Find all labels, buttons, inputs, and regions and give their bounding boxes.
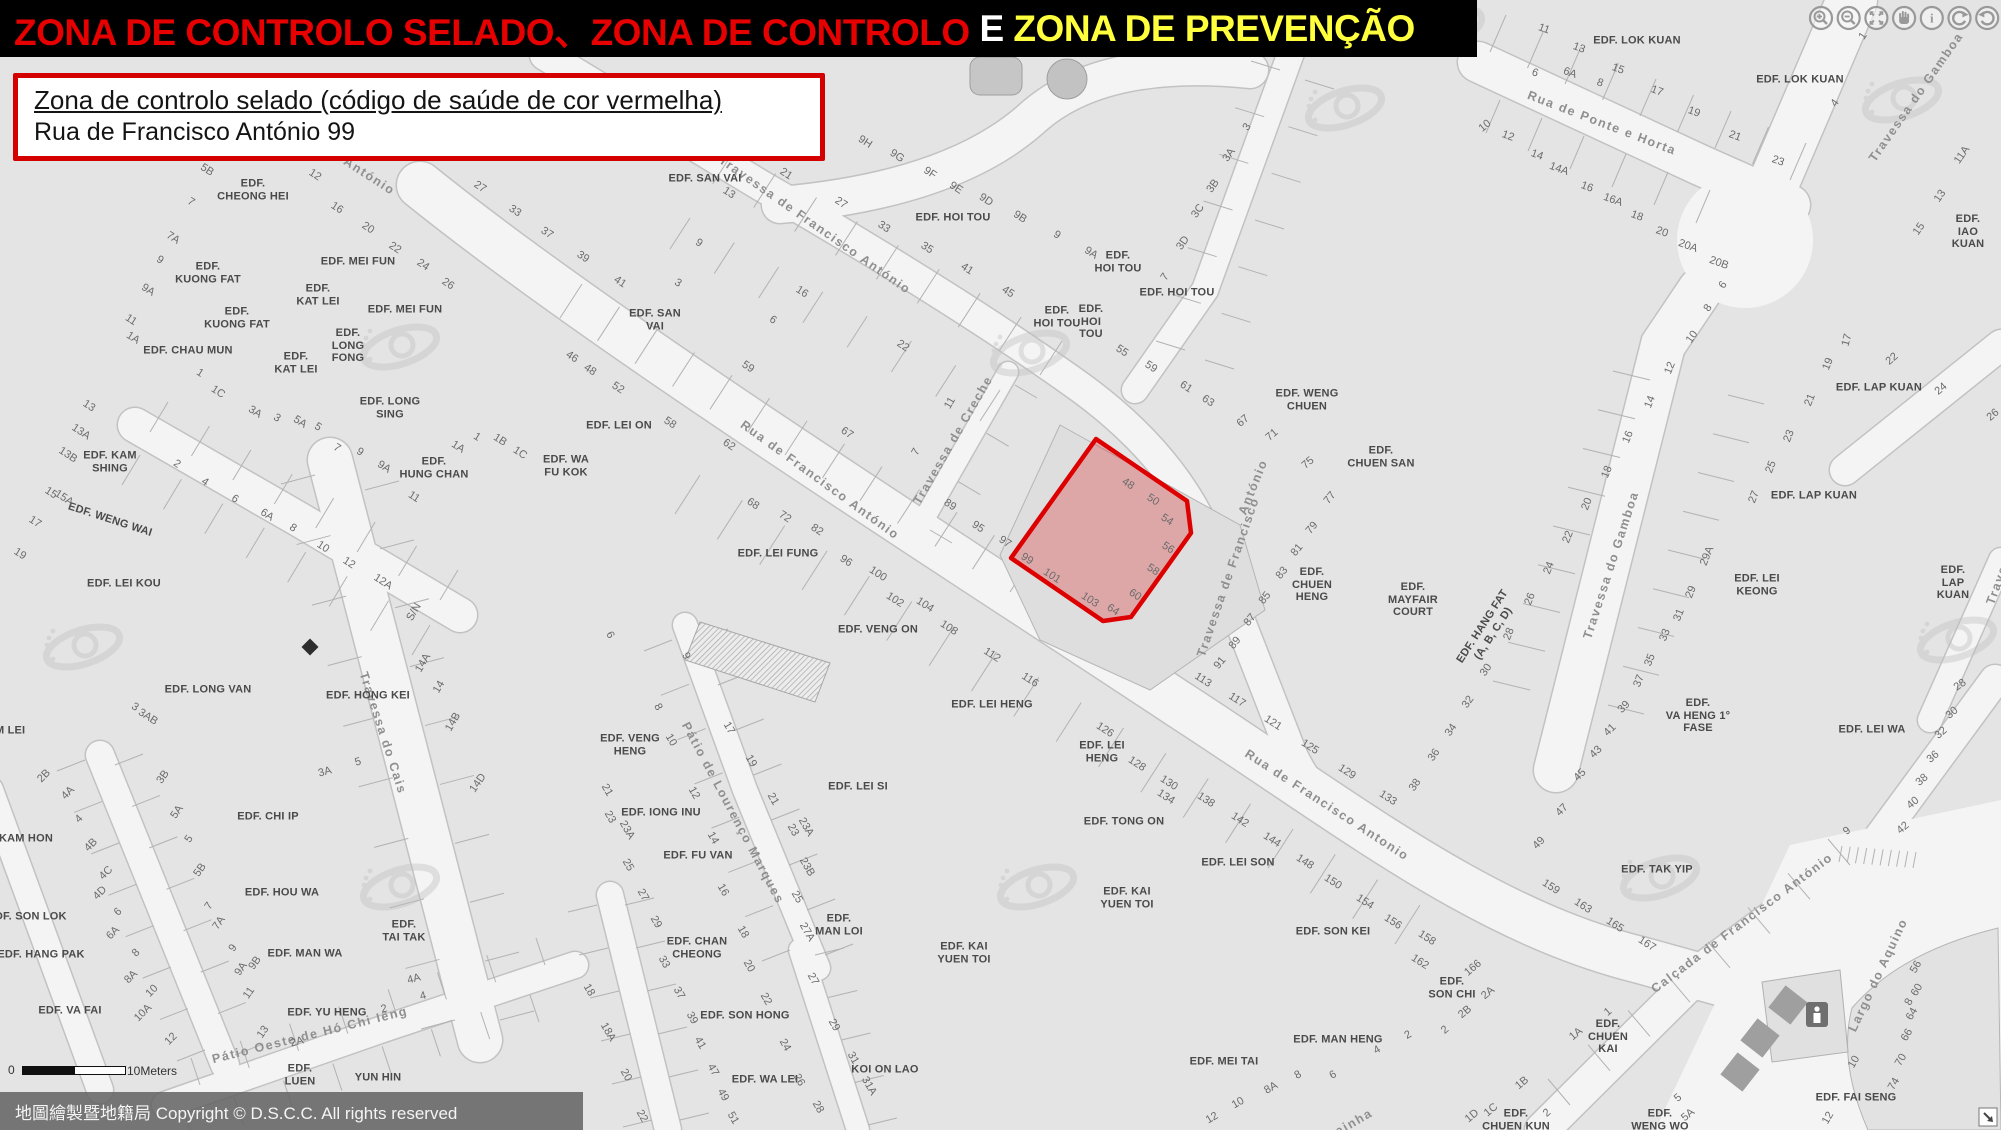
lot-number-label: 9E — [947, 179, 965, 196]
lot-number-label: 6 — [229, 492, 241, 505]
lot-number-label: 101 — [1041, 566, 1063, 586]
lot-number-label: 5A — [168, 803, 186, 821]
building-label: EDF. LONG VAN — [165, 684, 252, 697]
lot-number-label: 8 — [1701, 302, 1714, 314]
lot-number-label: 150 — [1322, 872, 1344, 892]
lot-number-label: 1C — [511, 444, 529, 462]
lot-number-label: 47 — [1553, 801, 1570, 818]
lot-number-label: 12 — [1500, 128, 1516, 143]
lot-number-label: 9 — [226, 942, 239, 954]
lot-number-label: 36 — [1426, 747, 1443, 764]
lot-number-label: 41 — [959, 261, 976, 278]
building-label: EDF. KAT LEI — [274, 350, 317, 375]
lot-number-label: 4C — [97, 864, 115, 882]
lot-number-label: 29A — [1698, 545, 1716, 568]
lot-number-label: 99 — [1019, 551, 1036, 568]
building-label: EDF. MAN HENG — [1293, 1034, 1382, 1047]
lot-number-label: 27 — [805, 971, 822, 988]
lot-number-label: 4A — [59, 784, 77, 802]
lot-number-label: 4 — [1828, 97, 1841, 109]
lot-number-label: 28 — [810, 1099, 827, 1116]
lot-number-label: 13 — [81, 398, 98, 415]
lot-number-label: 10 — [1230, 1095, 1247, 1112]
lot-number-label: 22 — [758, 991, 775, 1008]
building-label: EDF. HANG PAK — [0, 949, 85, 962]
lot-number-label: 3AB — [136, 706, 160, 727]
lot-number-label: 159 — [1540, 877, 1562, 897]
lot-number-label: 23A — [796, 816, 816, 839]
lot-number-label: 33 — [876, 219, 893, 236]
lot-number-label: 12 — [341, 555, 358, 572]
lot-number-label: 3C — [1189, 202, 1207, 220]
lot-number-label: 13A — [70, 422, 93, 443]
lot-number-label: 20B — [1708, 254, 1731, 272]
lot-number-label: 5 — [312, 420, 324, 433]
lot-number-label: 1 — [1856, 30, 1869, 42]
scale-bar-segment-dark — [22, 1066, 76, 1075]
lot-number-label: 9 — [354, 445, 366, 458]
building-label: KOI ON LAO — [851, 1064, 918, 1077]
building-label: EDF. SON LOK — [0, 911, 67, 924]
building-label: EDF. WENG WO — [1631, 1107, 1689, 1130]
building-label: EDF. IAO KUAN — [1952, 213, 1985, 251]
lot-number-label: 89 — [1226, 634, 1243, 651]
building-label: EDF. LONG FONG — [332, 327, 365, 365]
lot-number-label: 6A — [258, 506, 276, 523]
lot-number-label: 61 — [1178, 379, 1195, 396]
building-label: EDF. WA LEI — [732, 1074, 799, 1087]
building-label: EDF. LEI HENG — [951, 699, 1032, 712]
lot-number-label: 95 — [970, 519, 987, 536]
lot-number-label: 7 — [185, 195, 197, 208]
lot-number-label: 28 — [1952, 677, 1969, 694]
scale-bar: 0 10Meters — [8, 1060, 228, 1084]
lot-number-label: 12 — [1204, 1110, 1221, 1127]
lot-number-label: 8 — [1595, 76, 1605, 89]
lot-number-label: 18 — [735, 924, 752, 941]
lot-number-label: 5B — [198, 161, 216, 178]
lot-number-label: 55 — [1114, 343, 1131, 360]
lot-number-label: 46 — [564, 349, 581, 366]
building-label: EDF. LEI ON — [586, 420, 652, 433]
lot-number-label: 38 — [1913, 771, 1930, 788]
street-name-label: Rua de Francisco António — [738, 418, 902, 543]
lot-number-label: 71 — [1263, 426, 1280, 443]
lot-number-label: 11 — [406, 489, 422, 505]
lot-number-label: 52 — [610, 380, 627, 397]
lot-number-label: 21 — [765, 791, 782, 808]
lot-number-label: 15 — [1610, 61, 1626, 76]
lot-number-label: 58 — [1145, 562, 1162, 579]
building-label: EDF. WENG CHUEN — [1276, 387, 1339, 412]
lot-number-label: 29 — [1683, 584, 1699, 600]
lot-number-label: 12 — [307, 167, 324, 184]
building-label: EDF. MAYFAIR COURT — [1388, 581, 1438, 619]
lot-number-label: 8A — [1262, 1079, 1280, 1096]
lot-number-label: 48 — [582, 362, 599, 379]
lot-number-label: 50 — [1145, 492, 1162, 509]
lot-number-label: 148 — [1294, 852, 1316, 872]
lot-number-label: 2 — [1402, 1028, 1413, 1041]
building-label: EDF. LOK KUAN — [1756, 74, 1844, 87]
lot-number-label: 20 — [1654, 224, 1670, 239]
zone-info-address: Rua de Francisco António 99 — [34, 118, 804, 147]
lot-number-label: 21 — [1727, 128, 1743, 143]
lot-number-label: 16 — [1579, 179, 1595, 194]
lot-number-label: 4A — [406, 971, 422, 986]
lot-number-label: 26 — [1984, 406, 2001, 423]
lot-number-label: 41 — [612, 274, 629, 291]
lot-number-label: 27A — [797, 921, 817, 944]
lot-number-label: 12 — [162, 1030, 179, 1047]
building-label: EDF. CHUEN SAN — [1347, 444, 1414, 469]
lot-number-label: 10 — [1684, 329, 1701, 346]
lot-number-label: 13 — [721, 185, 738, 202]
lot-number-label: 10A — [132, 1002, 154, 1024]
building-label: EDF. LUEN — [285, 1062, 316, 1087]
lot-number-label: 67 — [839, 425, 856, 442]
lot-number-label: 37 — [671, 985, 688, 1002]
lot-number-label: 54 — [1159, 512, 1176, 529]
building-label: EDF. MEI TAI — [1190, 1056, 1259, 1069]
lot-number-label: 26 — [1522, 591, 1538, 607]
lot-number-label: 23 — [602, 809, 619, 826]
lot-number-label: 14 — [705, 830, 722, 847]
lot-number-label: 35 — [1642, 652, 1658, 668]
lot-number-label: 3A — [1220, 146, 1238, 164]
lot-number-label: 108 — [938, 618, 960, 638]
lot-number-label: 16 — [794, 284, 811, 301]
lot-number-label: 2B — [1456, 1003, 1474, 1021]
lot-number-label: 18A — [598, 1021, 618, 1044]
lot-number-label: 125 — [1299, 737, 1321, 757]
lot-number-label: 6A — [1562, 65, 1579, 81]
lot-number-label: 10 — [1476, 117, 1493, 134]
lot-number-label: 97 — [997, 534, 1014, 551]
building-label: EDF. MAN WA — [268, 948, 343, 961]
lot-number-label: 9F — [921, 164, 938, 181]
building-label: EDF. LEI SON — [1201, 857, 1274, 870]
building-label: KAM LEI — [0, 725, 25, 738]
lot-number-label: 102 — [884, 590, 906, 610]
building-label: EDF. HOI TOU — [1033, 304, 1080, 329]
lot-number-label: 121 — [1262, 713, 1284, 733]
lot-number-label: 60 — [1127, 587, 1144, 604]
lot-number-label: 27 — [472, 179, 489, 196]
lot-number-label: 11 — [1537, 21, 1552, 36]
lot-number-label: 19 — [1820, 356, 1836, 372]
building-label: EDF. KAT LEI — [296, 282, 339, 307]
lot-number-label: 18 — [1629, 208, 1645, 223]
lot-number-label: 9D — [977, 191, 995, 209]
lot-number-label: 156 — [1382, 912, 1404, 932]
lot-number-label: 19 — [1686, 104, 1702, 119]
lot-number-label: 7 — [202, 900, 215, 912]
lot-number-label: 42 — [1894, 819, 1911, 836]
lot-number-label: 49 — [715, 1087, 732, 1104]
lot-number-label: 2B — [35, 767, 53, 785]
lot-number-label: 79 — [1303, 519, 1320, 536]
lot-number-label: 47 — [705, 1062, 722, 1079]
lot-number-label: 17 — [721, 720, 738, 737]
banner-segment-1: E — [979, 8, 1003, 50]
lot-number-label: 104 — [914, 595, 936, 615]
building-label: EDF. VA FAI — [38, 1005, 101, 1018]
scale-bar-segment-light — [74, 1066, 126, 1075]
lot-number-label: 3 — [672, 276, 684, 289]
lot-number-label: 20 — [741, 958, 758, 975]
lot-number-label: 60 — [1909, 982, 1926, 999]
lot-number-label: 163 — [1572, 896, 1594, 916]
scale-units-label: 10Meters — [127, 1064, 177, 1078]
lot-number-label: 112 — [981, 645, 1002, 665]
lot-number-label: 28 — [1501, 626, 1517, 642]
lot-number-label: 103 — [1079, 590, 1101, 610]
lot-number-label: 16 — [329, 200, 346, 217]
lot-number-label: 1B — [1513, 1074, 1531, 1092]
lot-number-label: 11A — [1952, 144, 1973, 166]
building-label: EDF. LAP KUAN — [1929, 564, 1977, 602]
lot-number-label: 3 — [1240, 121, 1253, 133]
lot-number-label: 83 — [1273, 564, 1290, 581]
street-name-label: ainha — [1333, 1106, 1375, 1130]
building-label: EDF. FAI SENG — [1816, 1092, 1897, 1105]
banner-segment-2: ZONA DE PREVENÇÃO — [1004, 8, 1415, 50]
lot-number-label: 126 — [1094, 720, 1116, 740]
lot-number-label: 6 — [1530, 66, 1540, 79]
lot-number-label: 9 — [1841, 824, 1853, 837]
lot-number-label: 26 — [440, 276, 457, 293]
lot-number-label: 39 — [575, 249, 592, 266]
building-label: EDF. LEI WA — [1839, 724, 1906, 737]
building-label: EDF. FU VAN — [663, 850, 732, 863]
lot-number-label: 13 — [1932, 188, 1949, 205]
building-label: EDF. LEI SI — [828, 781, 888, 794]
lot-number-label: 11 — [123, 312, 139, 328]
lot-number-label: 14A — [413, 652, 433, 675]
lot-number-label: 4D — [91, 884, 109, 902]
lot-number-label: 22 — [895, 338, 912, 355]
lot-number-label: 1A — [449, 438, 467, 455]
lot-number-label: 100 — [867, 564, 889, 584]
lot-number-label: 74 — [1886, 1076, 1903, 1093]
building-label: EDF. SAN VAI — [629, 307, 681, 332]
lot-number-label: 10 — [143, 982, 160, 999]
lot-number-label: 41 — [1601, 721, 1618, 738]
lot-number-label: 17 — [1840, 333, 1855, 348]
lot-number-label: 27 — [635, 887, 652, 904]
lot-number-label: 5 — [1672, 1091, 1684, 1104]
lot-number-label: 29 — [648, 914, 665, 931]
lot-number-label: 12A — [372, 572, 395, 593]
building-label: EDF. IONG INU — [621, 807, 701, 820]
lot-number-label: 6 — [1716, 279, 1729, 291]
lot-number-label: 16 — [715, 882, 732, 899]
copyright-text: 地圖繪製暨地籍局 Copyright © D.S.C.C. All rights… — [15, 1099, 457, 1124]
lot-number-label: 17 — [1649, 83, 1665, 98]
lot-number-label: 1 — [1602, 1005, 1614, 1018]
lot-number-label: 12 — [1820, 1110, 1837, 1127]
lot-number-label: 8 — [287, 521, 299, 534]
lot-number-label: 24 — [1932, 380, 1949, 397]
lot-number-label: 30 — [1943, 704, 1960, 721]
lot-number-label: 6 — [112, 906, 125, 919]
lot-number-label: 14D — [467, 771, 488, 794]
lot-number-label: 142 — [1229, 810, 1251, 830]
title-banner: ZONA DE CONTROLO SELADO、ZONA DE CONTROLO… — [0, 0, 1477, 57]
lot-number-label: 4 — [73, 813, 86, 826]
lot-number-label: 5A — [291, 413, 309, 430]
lot-number-label: 1C — [209, 383, 227, 401]
lot-number-label: 32 — [1460, 694, 1477, 711]
lot-number-label: 3A — [246, 403, 264, 420]
lot-number-label: 25 — [789, 889, 806, 906]
lot-number-label: 43 — [1587, 743, 1604, 760]
lot-number-label: 38 — [1407, 777, 1424, 794]
lot-number-label: 11 — [942, 395, 958, 411]
lot-number-label: 11 — [241, 985, 257, 1001]
lot-number-label: 6 — [1327, 1068, 1338, 1081]
lot-number-label: 41 — [692, 1035, 709, 1052]
lot-number-label: 91 — [1211, 654, 1228, 671]
building-label: EDF. HOI TOU — [1094, 249, 1141, 274]
building-label: EDF. KUONG FAT — [175, 260, 241, 285]
lot-number-label: 3B — [154, 768, 172, 786]
lot-number-label: 64 — [1904, 1006, 1921, 1023]
building-label: EDF. LEI FUNG — [738, 548, 819, 561]
lot-number-label: 15 — [1911, 221, 1928, 238]
building-label: EDF. TONG ON — [1084, 816, 1164, 829]
lot-number-label: 14A — [1548, 160, 1571, 178]
lot-number-label: 1B — [491, 431, 509, 448]
lot-number-label: 34 — [1443, 722, 1460, 739]
lot-number-label: 48 — [1120, 476, 1137, 493]
street-name-label: Travessa do Gamboa — [1866, 30, 1966, 165]
building-label: EDF. MAN LOI — [815, 912, 863, 937]
lot-number-label: 58 — [662, 415, 679, 432]
lot-number-label: 9 — [154, 253, 166, 266]
lot-number-label: 96 — [838, 553, 855, 570]
building-label: EDF. SON KEI — [1296, 926, 1371, 939]
lot-number-label: 31A — [859, 1075, 879, 1098]
building-label: EDF. SON CHI — [1428, 975, 1475, 1000]
building-label: EDF. CHUEN KAI — [1588, 1018, 1628, 1056]
lot-number-label: 165 — [1604, 915, 1626, 935]
building-label: EDF. HOI TOU — [1079, 303, 1104, 341]
building-label: EDF. WENG WAI — [66, 500, 153, 539]
lot-number-label: 49 — [1530, 834, 1547, 851]
lot-number-label: 10 — [663, 732, 680, 749]
street-name-label: Largo do Aquino — [1846, 916, 1911, 1034]
lot-number-label: 8 — [651, 701, 664, 712]
street-name-label: Travessa de Creche — [910, 373, 995, 507]
lot-number-label: 7 — [1158, 271, 1171, 283]
lot-number-label: 6 — [603, 629, 616, 640]
building-label: EDF. LEI KOU — [87, 578, 161, 591]
lot-number-label: 2 — [171, 457, 183, 470]
lot-number-label: 21 — [778, 166, 795, 183]
lot-number-label: 37 — [1631, 673, 1647, 689]
lot-number-label: 1D — [1463, 1107, 1481, 1125]
lot-number-label: 9B — [1011, 208, 1029, 225]
lot-number-label: 17 — [27, 514, 44, 531]
lot-number-label: 3B — [1204, 177, 1222, 195]
lot-number-label: 36 — [1924, 748, 1941, 765]
building-label: EDF. CHAU MUN — [143, 345, 232, 358]
lot-number-label: 9B — [246, 954, 264, 972]
lot-number-label: 22 — [1560, 529, 1576, 545]
lot-number-label: 7 — [909, 446, 922, 457]
lot-number-label: 22 — [387, 240, 404, 257]
building-label: EDF. VENG ON — [838, 624, 918, 637]
lot-number-label: 20A — [1677, 237, 1700, 255]
lot-number-label: 116 — [1019, 670, 1040, 690]
lot-number-label: 5B — [191, 861, 209, 879]
lot-number-label: 31 — [1671, 607, 1687, 623]
lot-number-label: 138 — [1195, 790, 1217, 810]
lot-number-label: 9 — [1051, 228, 1063, 241]
lot-number-label: 20 — [1579, 496, 1595, 512]
lot-number-label: 35 — [919, 240, 936, 257]
lot-number-label: 14 — [1529, 147, 1545, 162]
lot-number-label: 1 — [194, 366, 206, 379]
building-label: EDF. CHI IP — [237, 811, 299, 824]
lot-number-label: 89 — [942, 497, 959, 514]
building-label: EDF. LAP KUAN — [1771, 490, 1857, 503]
lot-number-label: 51 — [725, 1110, 742, 1127]
lot-number-label: 33 — [1657, 627, 1673, 643]
lot-number-label: 24 — [777, 1037, 794, 1054]
lot-number-label: 8 — [1292, 1068, 1303, 1081]
lot-number-label: 6 — [767, 313, 779, 326]
building-label: EDF. HOI TOU — [916, 212, 991, 225]
lot-number-label: 59 — [740, 359, 757, 376]
lot-number-label: 23B — [797, 856, 817, 879]
lot-number-label: 14 — [1642, 394, 1658, 410]
lot-number-label: 8A — [122, 968, 140, 986]
lot-number-label: 77 — [1321, 489, 1338, 506]
lot-number-label: 85 — [1256, 589, 1273, 606]
lot-number-label: 9A — [139, 281, 157, 298]
lot-number-label: 18 — [581, 982, 598, 999]
lot-number-label: 167 — [1636, 934, 1658, 954]
lot-number-label: 16A — [1602, 191, 1625, 209]
building-label: YUN HIN — [355, 1072, 402, 1085]
lot-number-label: 12 — [1662, 360, 1678, 376]
lot-number-label: 37 — [539, 225, 556, 242]
lot-number-label: 63 — [1200, 393, 1217, 410]
lot-number-label: 5 — [182, 833, 195, 845]
lot-number-label: 117 — [1226, 690, 1247, 710]
street-name-label: Travessa de Francisco — [1194, 495, 1262, 658]
lot-number-label: 9H — [856, 133, 874, 151]
lot-number-label: 128 — [1126, 754, 1148, 774]
building-label: EDF. YU HENG — [287, 1007, 366, 1020]
lot-number-label: 1A — [1567, 1025, 1585, 1043]
lot-number-label: 25 — [620, 857, 637, 874]
lot-number-label: 75 — [1299, 454, 1316, 471]
building-label: EDF. TAI TAK — [382, 918, 425, 943]
zone-info-box: Zona de controlo selado (código de saúde… — [13, 73, 825, 161]
lot-number-label: 13 — [1571, 40, 1587, 55]
lot-number-label: 68 — [745, 496, 762, 513]
lot-number-label: 6A — [104, 924, 122, 942]
building-label: EDF. MEI FUN — [368, 304, 443, 317]
building-label: EDF. VENG HENG — [600, 732, 660, 757]
building-label: EDF. HOI TOU — [1140, 287, 1215, 300]
zone-info-title: Zona de controlo selado (código de saúde… — [34, 85, 804, 116]
map-labels-layer: Travessa de Francisco Antónioco AntónioT… — [0, 0, 2001, 1130]
